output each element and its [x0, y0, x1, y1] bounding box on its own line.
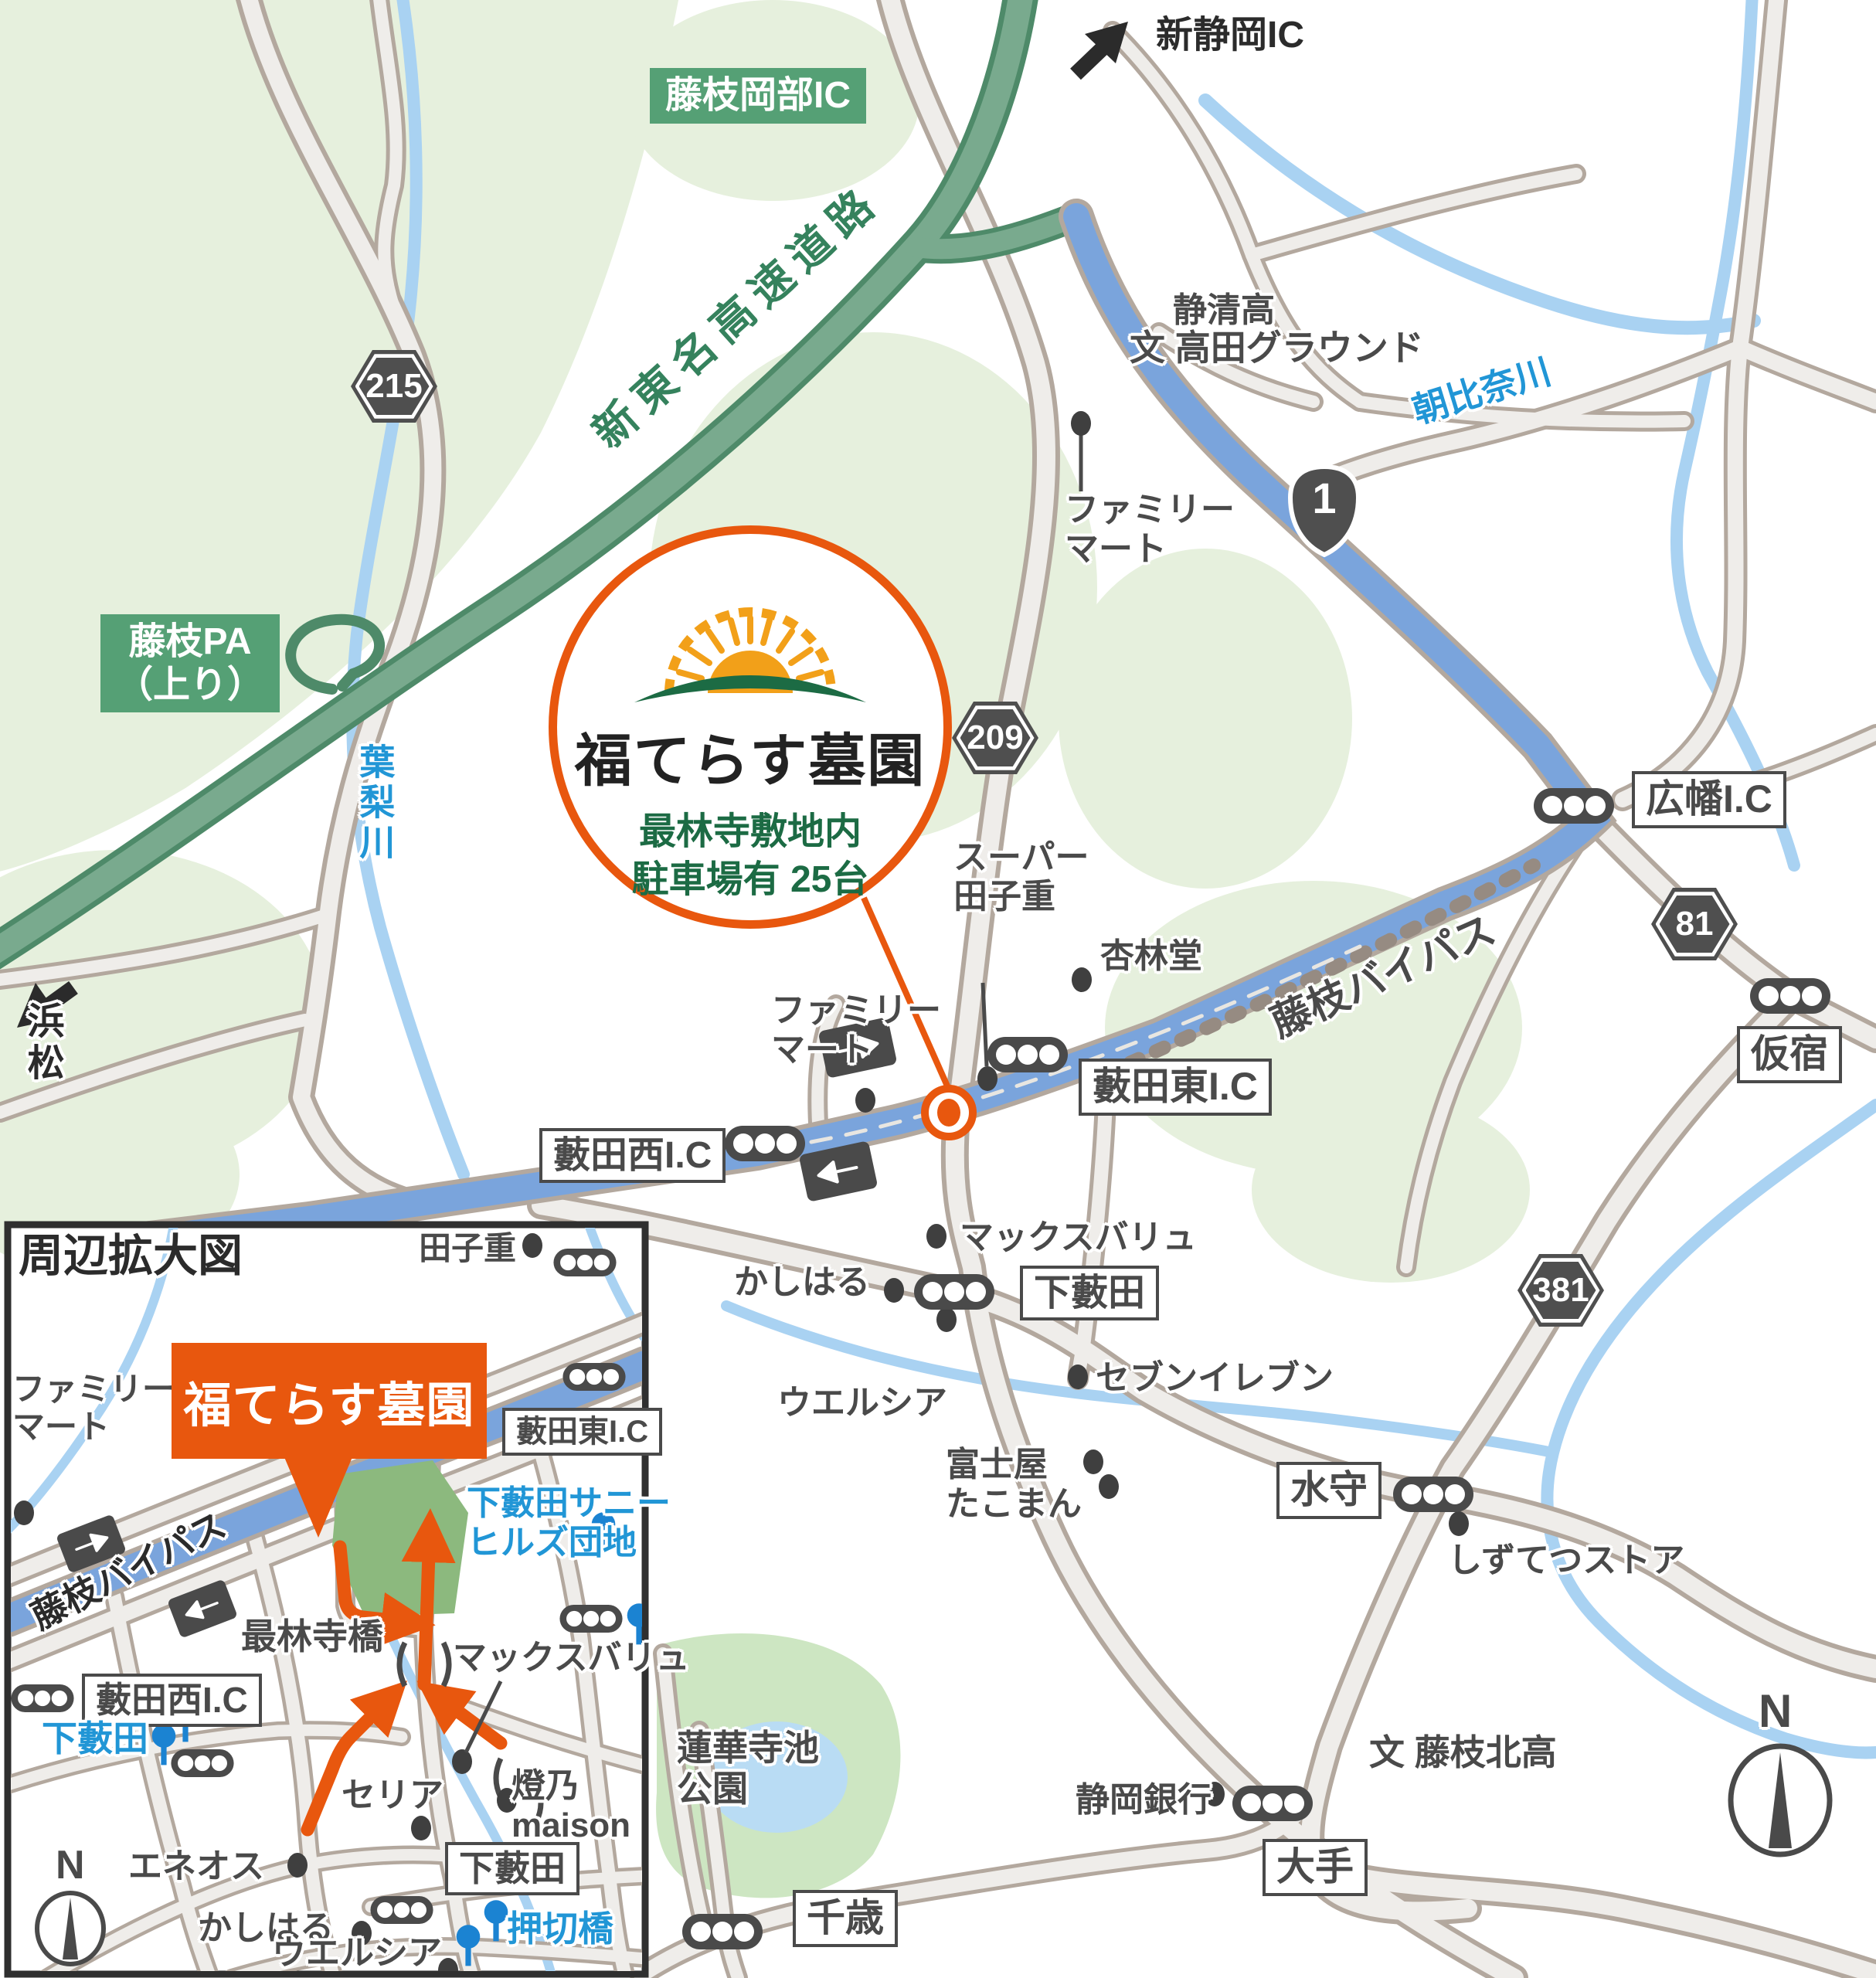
cemetery-note-line2: 駐車場有 25台 — [557, 856, 943, 904]
traffic-light-icon — [987, 1037, 1068, 1072]
route-badge-81-number: 81 — [1676, 905, 1714, 943]
route-badge-1: 1 — [1287, 462, 1361, 559]
kashihara-main-dot — [884, 1278, 904, 1303]
traffic-light-icon — [1534, 788, 1614, 824]
traffic-light-icon — [562, 1363, 625, 1391]
inset-tomono-dot — [497, 1788, 517, 1813]
inset-banner-pointer — [284, 1457, 352, 1538]
traffic-light-icon — [1393, 1477, 1473, 1512]
maxvalu-main-dot — [926, 1224, 946, 1249]
traffic-light-icon — [559, 1605, 622, 1633]
traffic-light-icon — [682, 1914, 763, 1949]
route-badge-215-number: 215 — [365, 367, 422, 406]
inset-eneos-dot — [287, 1853, 308, 1878]
familymart-north-dot — [1071, 411, 1091, 436]
compass-inset — [37, 1893, 104, 1964]
welcia-main-dot — [936, 1307, 957, 1332]
traffic-light-icon — [1232, 1786, 1313, 1821]
access-map: 215 209 81 381 1 福てらす墓園 最林寺敷地内 駐車場有 25台 … — [0, 0, 1876, 1978]
familymart-bypass-dot — [855, 1088, 875, 1113]
inset-familymart-dot — [14, 1500, 34, 1525]
sunrise-icon — [619, 571, 882, 706]
kyorindo-dot — [1072, 967, 1092, 992]
cemetery-name: 福てらす墓園 — [557, 715, 943, 797]
fujiya-dot — [1083, 1450, 1103, 1474]
map-graphics — [0, 0, 1876, 1978]
cemetery-logo-badge: 福てらす墓園 最林寺敷地内 駐車場有 25台 — [549, 525, 952, 929]
inset-seria-dot — [411, 1816, 431, 1840]
traffic-light-icon — [1750, 978, 1830, 1014]
traffic-light-icon — [11, 1684, 73, 1712]
inset-kashihara-dot — [352, 1921, 372, 1946]
shizuoka-bank-dot — [1205, 1782, 1225, 1806]
traffic-light-icon — [171, 1749, 233, 1777]
traffic-light-icon — [914, 1274, 994, 1310]
shin-shizuoka-arrow-icon — [1076, 22, 1128, 74]
takoman-dot — [1099, 1474, 1119, 1499]
shizutetsu-dot — [1449, 1511, 1469, 1536]
inset-tagoju-dot — [522, 1233, 542, 1258]
cemetery-note-line1: 最林寺敷地内 — [557, 808, 943, 856]
inset-banner: 福てらす墓園 — [172, 1343, 487, 1459]
traffic-light-icon — [370, 1896, 433, 1924]
traffic-light-icon — [725, 1126, 805, 1161]
route-badge-381-number: 381 — [1532, 1271, 1589, 1310]
inset-maxvalu-dot — [452, 1749, 472, 1774]
traffic-light-icon — [553, 1249, 616, 1276]
super-tagoju-dot — [977, 1066, 997, 1091]
route-badge-1-number: 1 — [1287, 473, 1361, 523]
inset-banner-text: 福てらす墓園 — [184, 1366, 475, 1436]
seveneleven-dot — [1068, 1365, 1088, 1389]
route-badge-209-number: 209 — [967, 719, 1023, 757]
compass-main — [1731, 1746, 1830, 1854]
